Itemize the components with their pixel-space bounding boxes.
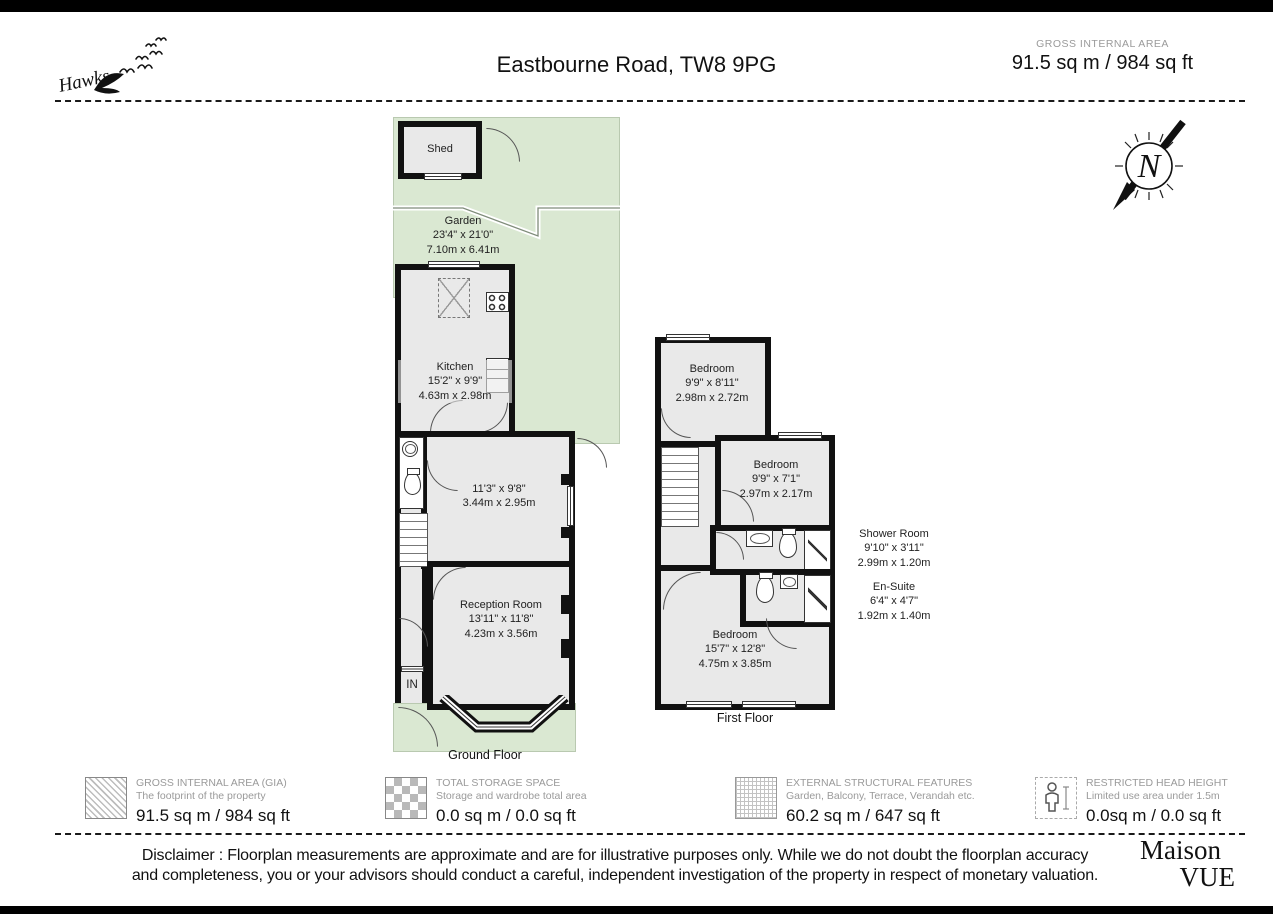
compass-north-letter: N — [1137, 148, 1163, 185]
room-name: Reception Room — [437, 598, 565, 612]
room-name: Shower Room — [838, 527, 950, 541]
ground-floor-caption: Ground Floor — [395, 748, 575, 762]
in-text: IN — [399, 678, 425, 693]
room-name: Shed — [404, 142, 476, 156]
shed-label: Shed — [404, 142, 476, 156]
top-black-bar — [0, 0, 1273, 12]
room-name: Bedroom — [662, 362, 762, 376]
person-icon — [1040, 781, 1072, 815]
gia-header: GROSS INTERNAL AREA 91.5 sq m / 984 sq f… — [985, 38, 1220, 75]
room-metric: 1.92m x 1.40m — [838, 609, 950, 623]
room-metric: 2.98m x 2.72m — [662, 391, 762, 405]
room-name: Bedroom — [720, 458, 832, 472]
shower-room-label: Shower Room 9'10" x 3'11" 2.99m x 1.20m — [838, 527, 950, 570]
legend-subtitle: Storage and wardrobe total area — [436, 790, 587, 803]
ensuite-basin-icon — [780, 574, 798, 589]
room-metric: 2.97m x 2.17m — [720, 487, 832, 501]
garden-side — [514, 268, 620, 444]
bedroom3-window — [742, 701, 796, 708]
room-metric: 7.10m x 6.41m — [398, 243, 528, 257]
room-imperial: 9'9" x 8'11" — [662, 376, 762, 390]
disclaimer-text: Disclaimer : Floorplan measurements are … — [70, 846, 1160, 886]
room-imperial: 11'3" x 9'8" — [428, 482, 570, 496]
ensuite-toilet-icon — [756, 576, 774, 603]
ensuite-shower-icon — [804, 575, 831, 623]
legend-title: TOTAL STORAGE SPACE — [436, 777, 587, 790]
porch-threshold — [401, 666, 424, 672]
restricted-swatch-icon — [1035, 777, 1077, 819]
ground-stairs — [399, 513, 428, 567]
bedroom1-window — [666, 334, 710, 341]
chimney-recess — [561, 639, 574, 658]
gia-label: GROSS INTERNAL AREA — [985, 38, 1220, 50]
gia-swatch-icon — [85, 777, 127, 819]
compass-icon: N — [1103, 116, 1195, 216]
brand-line2: VUE — [1140, 864, 1235, 891]
disclaimer-line1: Disclaimer : Floorplan measurements are … — [70, 846, 1160, 866]
footer-divider — [55, 833, 1245, 835]
header-divider — [55, 100, 1245, 102]
reception-label: Reception Room 13'11" x 11'8" 4.23m x 3.… — [437, 598, 565, 641]
shed-window — [424, 173, 462, 180]
kitchen-label: Kitchen 15'2" x 9'9" 4.63m x 2.98m — [398, 360, 512, 403]
bottom-black-bar — [0, 906, 1273, 914]
room-imperial: 23'4" x 21'0" — [398, 228, 528, 242]
wall-recess — [561, 527, 574, 538]
room-imperial: 13'11" x 11'8" — [437, 612, 565, 626]
legend-value: 91.5 sq m / 984 sq ft — [136, 806, 290, 826]
first-floor-caption: First Floor — [660, 711, 830, 725]
shower-room-basin-icon — [746, 530, 773, 547]
legend-title: RESTRICTED HEAD HEIGHT — [1086, 777, 1228, 790]
bedroom1-label: Bedroom 9'9" x 8'11" 2.98m x 2.72m — [662, 362, 762, 405]
dining-label: 11'3" x 9'8" 3.44m x 2.95m — [428, 482, 570, 511]
bedroom2-window — [778, 432, 822, 439]
legend-item-gia: GROSS INTERNAL AREA (GIA) The footprint … — [85, 777, 290, 826]
garden-label: Garden 23'4" x 21'0" 7.10m x 6.41m — [398, 214, 528, 257]
room-imperial: 9'9" x 7'1" — [720, 472, 832, 486]
room-name: Kitchen — [398, 360, 512, 374]
brand-line1: Maison — [1140, 837, 1235, 864]
legend-value: 0.0 sq m / 0.0 sq ft — [436, 806, 587, 826]
ensuite-label: En-Suite 6'4" x 4'7" 1.92m x 1.40m — [838, 580, 950, 623]
external-swatch-icon — [735, 777, 777, 819]
legend-subtitle: Limited use area under 1.5m — [1086, 790, 1228, 803]
legend-value: 0.0sq m / 0.0 sq ft — [1086, 806, 1228, 826]
room-metric: 4.63m x 2.98m — [398, 389, 512, 403]
first-floor-stairs — [661, 447, 699, 527]
wc-toilet-icon — [404, 472, 421, 495]
room-imperial: 6'4" x 4'7" — [838, 594, 950, 608]
room-name: En-Suite — [838, 580, 950, 594]
legend-title: GROSS INTERNAL AREA (GIA) — [136, 777, 290, 790]
kitchen-window — [428, 261, 480, 268]
skylight-icon — [438, 278, 470, 318]
hob-icon — [486, 292, 509, 312]
maison-vue-logo: Maison VUE — [1140, 837, 1235, 891]
legend-subtitle: Garden, Balcony, Terrace, Verandah etc. — [786, 790, 975, 803]
bedroom2-label: Bedroom 9'9" x 7'1" 2.97m x 2.17m — [720, 458, 832, 501]
legend-subtitle: The footprint of the property — [136, 790, 290, 803]
legend-title: EXTERNAL STRUCTURAL FEATURES — [786, 777, 975, 790]
legend-item-restricted: RESTRICTED HEAD HEIGHT Limited use area … — [1035, 777, 1228, 826]
room-name: Garden — [398, 214, 528, 228]
room-metric: 2.99m x 1.20m — [838, 556, 950, 570]
storage-swatch-icon — [385, 777, 427, 819]
shower-tray-icon — [804, 530, 831, 571]
disclaimer-line2: and completeness, you or your advisors s… — [70, 866, 1160, 886]
room-imperial: 9'10" x 3'11" — [838, 541, 950, 555]
legend-value: 60.2 sq m / 647 sq ft — [786, 806, 975, 826]
legend-item-external: EXTERNAL STRUCTURAL FEATURES Garden, Bal… — [735, 777, 975, 826]
room-metric: 4.23m x 3.56m — [437, 627, 565, 641]
room-metric: 4.75m x 3.85m — [665, 657, 805, 671]
bay-window — [437, 695, 571, 733]
gia-value: 91.5 sq m / 984 sq ft — [985, 52, 1220, 75]
bedroom3-window — [686, 701, 732, 708]
floorplan-page: Hawks Eastbourne Road, TW8 9PG GROSS INT… — [0, 0, 1273, 914]
room-imperial: 15'2" x 9'9" — [398, 374, 512, 388]
wc-basin-icon — [402, 441, 418, 457]
legend-item-storage: TOTAL STORAGE SPACE Storage and wardrobe… — [385, 777, 587, 826]
shower-room-toilet-icon — [779, 532, 797, 558]
room-metric: 3.44m x 2.95m — [428, 496, 570, 510]
entrance-label: IN — [399, 678, 425, 693]
